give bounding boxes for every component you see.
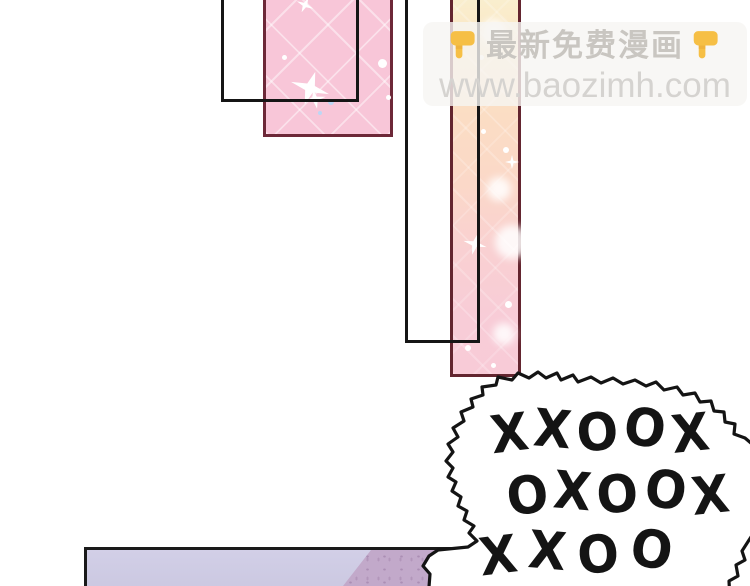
sparkle-dot <box>378 59 387 68</box>
bubble-text-line1: XXOOX <box>489 406 713 458</box>
sparkle-dot <box>386 95 391 100</box>
glow-dot <box>495 225 529 259</box>
glow-dot <box>493 323 515 345</box>
sparkle-dot <box>505 301 512 308</box>
sparkle-icon <box>505 155 519 169</box>
panel-outline-small <box>221 0 359 102</box>
sparkle-dot <box>503 147 509 153</box>
sparkle-dot <box>465 345 471 351</box>
watermark-box: 最新免费漫画 www.baozimh.com <box>423 22 747 106</box>
hand-pointing-down-icon <box>450 30 477 60</box>
sparkle-dot <box>481 129 486 134</box>
watermark-url: www.baozimh.com <box>439 68 731 103</box>
bubble-text-line3: XXOO <box>478 528 683 580</box>
watermark-line1: 最新免费漫画 <box>450 25 720 65</box>
hand-pointing-down-icon <box>693 30 720 60</box>
bubble-text-line2: OXOOX <box>505 468 733 520</box>
sparkle-dot <box>318 111 322 115</box>
watermark-text: 最新免费漫画 <box>486 30 684 61</box>
glow-dot <box>487 177 511 201</box>
comic-page: XXOOX OXOOX XXOO 最新免费漫画 www.baozimh.com <box>0 0 750 586</box>
